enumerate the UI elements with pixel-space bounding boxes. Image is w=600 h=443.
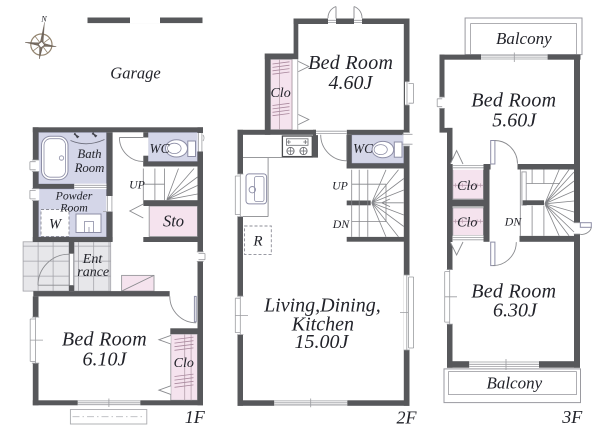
svg-text:Clo: Clo	[270, 86, 290, 101]
svg-text:Balcony: Balcony	[486, 373, 542, 392]
svg-text:5.60J: 5.60J	[492, 110, 537, 132]
svg-text:W: W	[49, 217, 63, 233]
svg-text:DN: DN	[504, 214, 523, 228]
svg-text:Room: Room	[74, 161, 105, 175]
svg-text:R: R	[252, 234, 262, 250]
svg-text:DN: DN	[332, 217, 351, 231]
svg-text:UP: UP	[332, 179, 348, 193]
svg-text:Bed Room: Bed Room	[471, 89, 556, 111]
svg-text:6.30J: 6.30J	[493, 300, 538, 322]
svg-text:WC: WC	[353, 141, 373, 156]
svg-text:Bed Room: Bed Room	[62, 329, 147, 351]
svg-text:4.60J: 4.60J	[329, 72, 374, 94]
svg-text:WC: WC	[150, 141, 170, 156]
svg-text:Clo: Clo	[457, 216, 477, 231]
svg-text:UP: UP	[129, 178, 145, 192]
svg-text:1F: 1F	[185, 407, 206, 427]
svg-text:2F: 2F	[397, 407, 418, 427]
svg-text:Garage: Garage	[110, 64, 160, 83]
svg-text:Clo: Clo	[174, 356, 194, 371]
svg-text:Balcony: Balcony	[496, 29, 552, 48]
svg-text:Sto: Sto	[163, 212, 184, 231]
svg-text:Room: Room	[59, 201, 88, 215]
svg-text:Bed Room: Bed Room	[308, 52, 393, 74]
svg-text:3F: 3F	[561, 407, 583, 427]
svg-text:rance: rance	[77, 265, 109, 280]
svg-text:Clo: Clo	[457, 179, 477, 194]
svg-text:N: N	[40, 15, 47, 24]
svg-text:6.10J: 6.10J	[82, 349, 127, 371]
svg-text:Bath: Bath	[77, 147, 101, 161]
svg-text:15.00J: 15.00J	[295, 331, 350, 353]
